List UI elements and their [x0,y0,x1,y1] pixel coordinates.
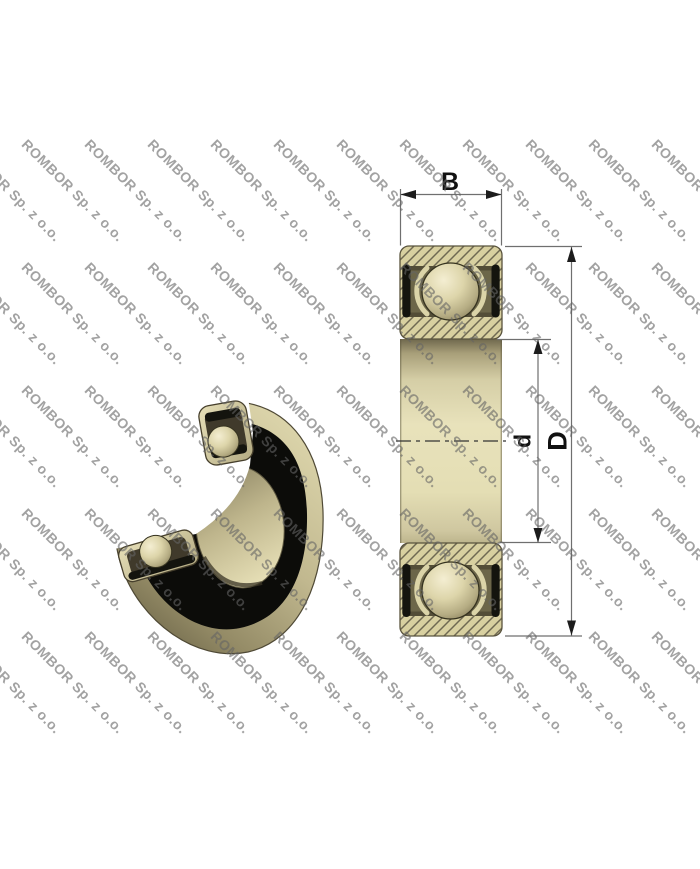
d-arrow-up [534,340,543,355]
cross-section-view [396,246,506,636]
top-ball [422,263,479,320]
bottom-ball [422,562,479,619]
bottom-seal-left [402,564,410,617]
bearing-drawing-svg [0,0,700,869]
upper-cut-section [197,399,255,466]
dimension-label-B: B [441,170,459,195]
B-arrow-left [401,190,417,199]
drawing-canvas: B d D ROMBOR Sp. z o.o.ROMBOR Sp. z o.o.… [0,0,700,869]
dimension-B [401,189,502,246]
top-seal-left [402,265,410,318]
d-arrow-down [534,528,543,543]
D-arrow-up [567,247,576,262]
B-arrow-right [486,190,502,199]
dimension-label-d: d [512,434,535,448]
D-arrow-down [567,621,576,636]
cutaway-3d-view [50,344,323,654]
top-seal-right [492,265,500,318]
dimension-label-D: D [545,431,572,451]
bottom-seal-right [492,564,500,617]
